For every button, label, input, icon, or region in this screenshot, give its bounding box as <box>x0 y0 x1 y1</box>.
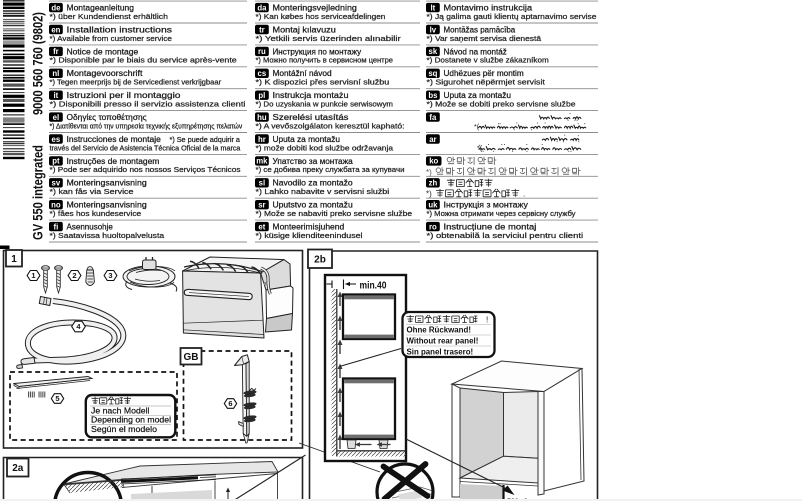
svg-text:Instrucciones de montaje: Instrucciones de montaje <box>67 135 161 144</box>
svg-text:min.40: min.40 <box>360 281 387 292</box>
svg-text:5: 5 <box>55 394 59 403</box>
svg-text:*) Var saņemt servisa dienestā: *) Var saņemt servisa dienestā <box>427 34 543 43</box>
svg-text:*) Lahko nabavite v servisni s: *) Lahko nabavite v servisni službi <box>256 187 390 196</box>
svg-text:*) Može se dobiti preko servis: *) Može se dobiti preko servisne službe <box>427 100 576 109</box>
svg-text:*) Pode ser adquirido nos noss: *) Pode ser adquirido nos nossos Serviço… <box>50 165 241 174</box>
svg-text:*) Можно получить в сервисном: *) Можно получить в сервисном центре <box>256 56 394 65</box>
svg-text:3: 3 <box>108 271 112 280</box>
svg-text:*) Može se nabaviti preko serv: *) Može se nabaviti preko servisne služb… <box>256 209 413 218</box>
svg-text:Without rear panel!: Without rear panel! <box>407 337 479 346</box>
svg-text:*) Ją galima gauti klientų apt: *) Ją galima gauti klientų aptarnavimo s… <box>427 12 597 21</box>
svg-text:*) Dostanete v službe zákazník: *) Dostanete v službe zákazníkom <box>427 56 549 65</box>
svg-text:*) Можна отримати через сервіс: *) Можна отримати через сервісну службу <box>427 209 576 218</box>
svg-text:*) Se puede adquirir a: *) Se puede adquirir a <box>170 137 241 144</box>
svg-text:*): *) <box>426 189 432 198</box>
svg-text:*) küsige klienditeenindusel: *) küsige klienditeenindusel <box>256 231 363 240</box>
svg-text:Ohne Rückwand!: Ohne Rückwand! <box>407 326 471 335</box>
svg-text:1: 1 <box>31 271 35 280</box>
svg-text:*) Disponible par le biais du: *) Disponible par le biais du service ap… <box>50 56 237 65</box>
svg-text:Οδηγίες τοποθέτησης: Οδηγίες τοποθέτησης <box>67 113 147 122</box>
svg-text:*) obtenabilă la serviciul pen: *) obtenabilă la serviciul pentru client… <box>427 231 584 240</box>
svg-text:través del Servicio de Asisten: través del Servicio de Asistencia Técnic… <box>50 145 241 152</box>
svg-text:es: es <box>52 135 61 144</box>
svg-text:6: 6 <box>228 399 232 408</box>
svg-text:!: ! <box>486 316 488 325</box>
svg-text:*(: *( <box>477 145 483 152</box>
svg-text:el: el <box>53 113 60 122</box>
svg-text:Sin panel trasero!: Sin panel trasero! <box>407 348 474 357</box>
svg-text:*) Do uzyskania w punkcie serw: *) Do uzyskania w punkcie serwisowym <box>256 100 394 109</box>
svg-text:*) Tegen meerprijs bij de Serv: *) Tegen meerprijs bij de Servicedienst … <box>50 78 222 87</box>
svg-text:ko: ko <box>429 157 438 166</box>
svg-text:*(: *( <box>474 124 480 131</box>
svg-text:*): *) <box>426 168 432 177</box>
svg-text:*) može dobiti kod službe održ: *) može dobiti kod službe održavanja <box>256 143 395 152</box>
svg-text:*) Available from customer ser: *) Available from customer service <box>50 34 172 43</box>
svg-text:2a: 2a <box>12 463 24 474</box>
svg-text:*) A vevőszolgálaton keresztül: *) A vevőszolgálaton keresztül kapható: <box>256 121 405 130</box>
svg-text:*) Yetkili servis üzerinden al: *) Yetkili servis üzerinden alınabilir <box>256 34 402 43</box>
svg-text:1: 1 <box>11 254 17 265</box>
svg-text:*) Sigurohet nëpërmjet servisi: *) Sigurohet nëpërmjet servisit <box>427 78 545 87</box>
svg-text:GB: GB <box>184 352 199 363</box>
svg-text:Según el modelo: Según el modelo <box>91 424 157 434</box>
svg-text:zh: zh <box>429 179 438 188</box>
svg-text:ar: ar <box>429 135 436 144</box>
svg-text:*) K dispozici přes servisní s: *) K dispozici přes servisní službu <box>256 78 390 87</box>
svg-text:*) Διατίθενται από την υπηρεσί: *) Διατίθενται από την υπηρεσία τεχνικής… <box>50 122 243 130</box>
svg-text:*) Kan købes hos serviceafdeli: *) Kan købes hos serviceafdelingen <box>256 12 386 21</box>
svg-text:*) Saatavissa huoltopalvelusta: *) Saatavissa huoltopalvelusta <box>50 231 166 240</box>
svg-text:fa: fa <box>429 113 437 122</box>
svg-text:*) Disponibili presso il servi: *) Disponibili presso il servizio assist… <box>50 100 246 109</box>
svg-text:*) се добива преку службата за: *) се добива преку службата за купувачи <box>256 165 405 174</box>
svg-text:*) über Kundendienst erhältlic: *) über Kundendienst erhältlich <box>50 12 168 21</box>
svg-text:.: . <box>523 189 525 198</box>
svg-text:*) kan fås via Service: *) kan fås via Service <box>50 187 134 196</box>
svg-text:2b: 2b <box>314 254 326 265</box>
svg-text:*) fåes hos kundeservice: *) fåes hos kundeservice <box>50 209 142 218</box>
svg-text:2: 2 <box>72 271 76 280</box>
